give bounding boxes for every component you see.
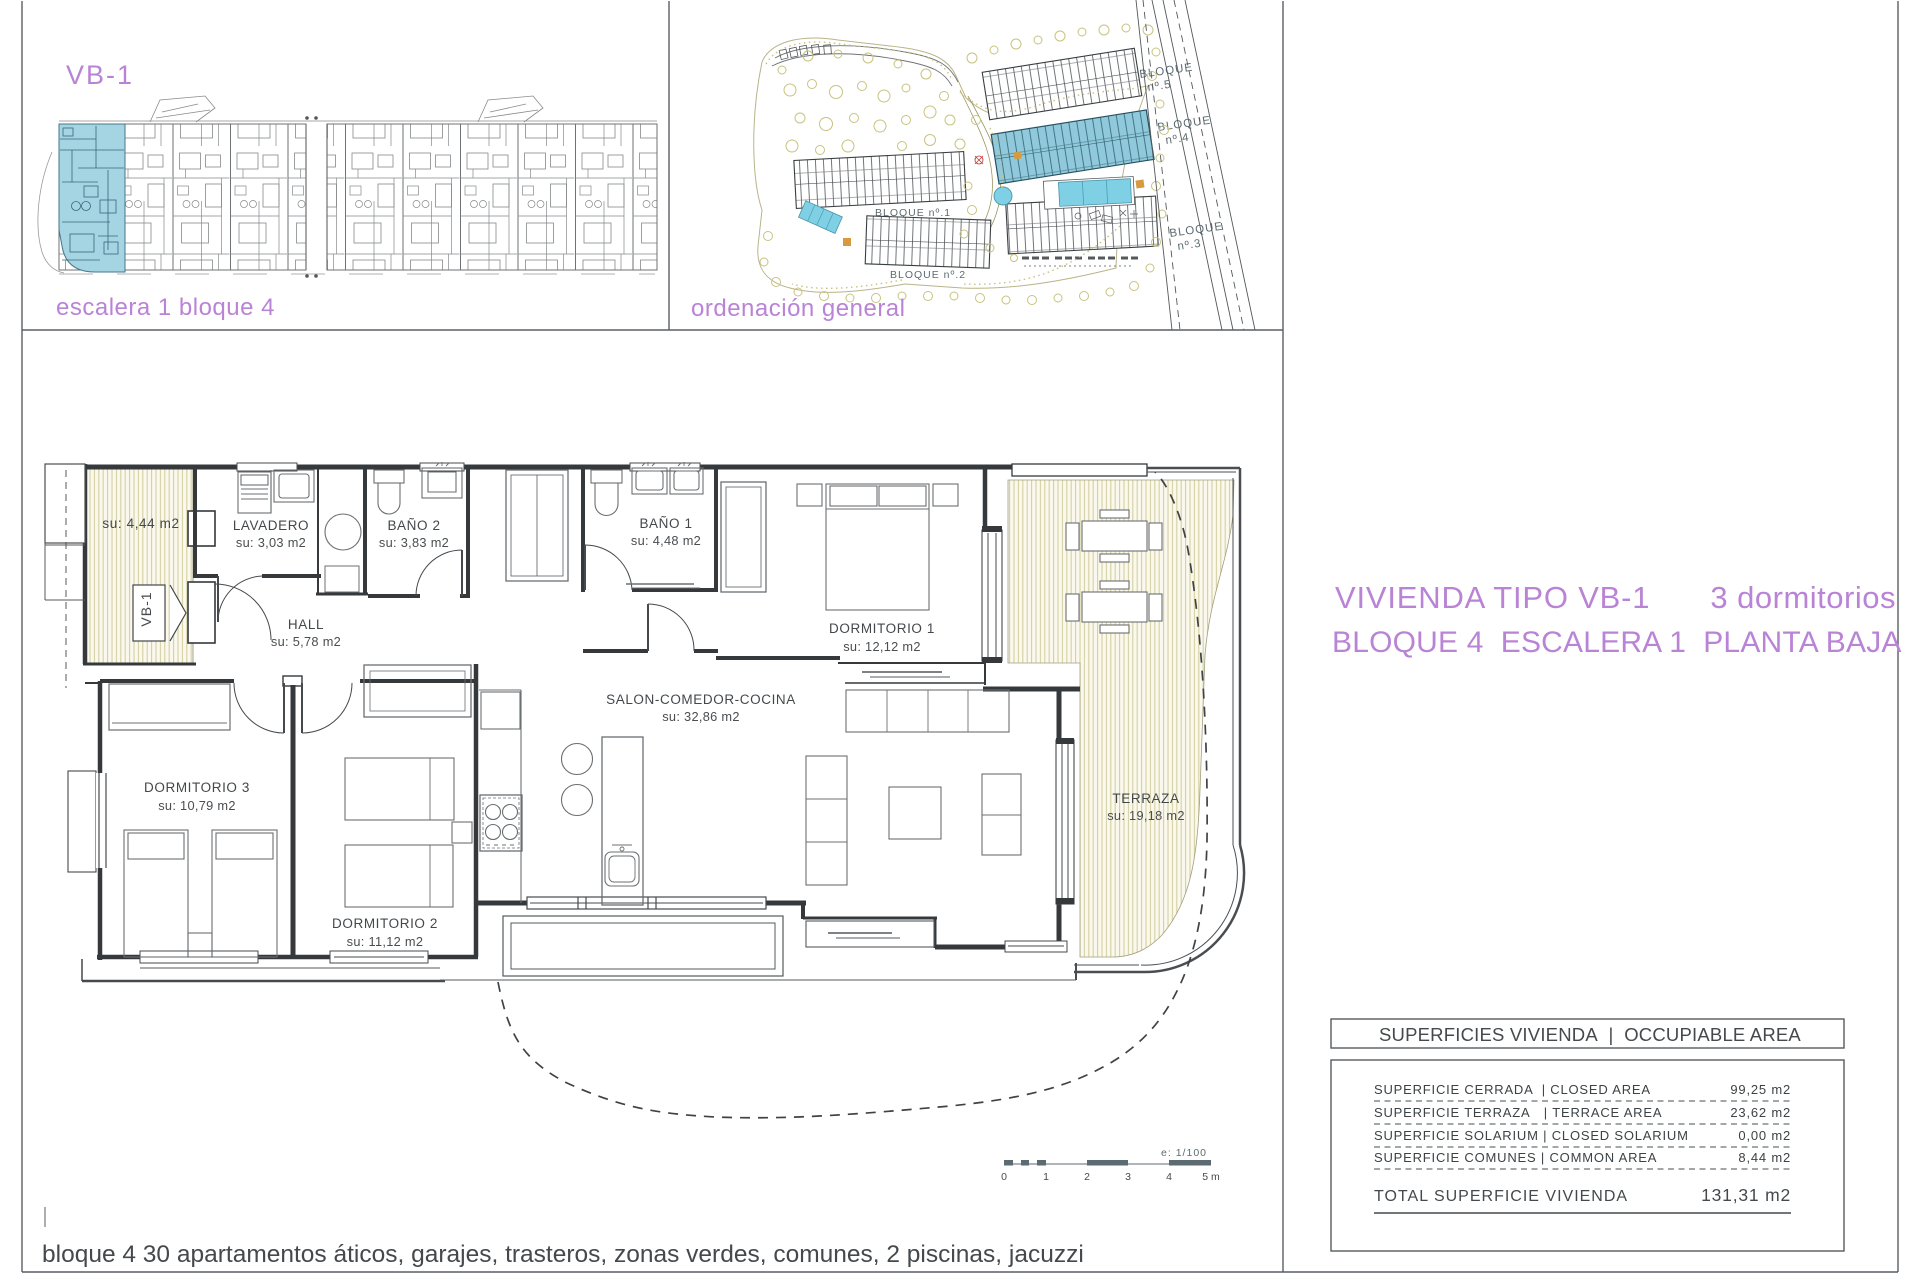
svg-text:nº.3: nº.3 [1177, 238, 1203, 253]
svg-text:DORMITORIO 3: DORMITORIO 3 [144, 780, 250, 795]
svg-text:DORMITORIO 1: DORMITORIO 1 [829, 621, 935, 636]
svg-text:1: 1 [1043, 1171, 1049, 1183]
svg-text:nº.5: nº.5 [1147, 79, 1173, 94]
svg-text:DORMITORIO 2: DORMITORIO 2 [332, 916, 438, 931]
svg-text:su: 5,78 m2: su: 5,78 m2 [271, 634, 341, 649]
svg-text:3 dormitorios: 3 dormitorios [1710, 580, 1896, 615]
svg-text:VIVIENDA TIPO VB-1: VIVIENDA TIPO VB-1 [1335, 580, 1650, 615]
svg-text:BAÑO 1: BAÑO 1 [639, 516, 692, 531]
svg-text:escalera 1 bloque 4: escalera 1 bloque 4 [56, 294, 275, 321]
svg-text:BLOQUE nº.2: BLOQUE nº.2 [890, 269, 966, 281]
svg-text:su: 4,44 m2: su: 4,44 m2 [102, 516, 179, 531]
svg-text:SUPERFICIE CERRADA | CLOSED A: SUPERFICIE CERRADA | CLOSED AREA [1374, 1082, 1651, 1097]
svg-text:BLOQUE 4 ESCALERA 1 PLANTA B: BLOQUE 4 ESCALERA 1 PLANTA BAJA [1332, 626, 1902, 659]
svg-text:BLOQUE: BLOQUE [1139, 62, 1194, 81]
svg-text:su: 11,12 m2: su: 11,12 m2 [347, 934, 424, 949]
svg-text:SALON-COMEDOR-COCINA: SALON-COMEDOR-COCINA [606, 692, 796, 707]
svg-text:SUPERFICIE TERRAZA | TERRACE: SUPERFICIE TERRAZA | TERRACE AREA [1374, 1105, 1662, 1120]
svg-text:su: 3,03 m2: su: 3,03 m2 [236, 535, 306, 550]
svg-text:SUPERFICIES VIVIENDA | OCCUP: SUPERFICIES VIVIENDA | OCCUPIABLE AREA [1379, 1024, 1801, 1045]
svg-text:SUPERFICIE COMUNES | COMMON AR: SUPERFICIE COMUNES | COMMON AREA [1374, 1150, 1657, 1165]
svg-text:su: 3,83 m2: su: 3,83 m2 [379, 535, 449, 550]
svg-text:VB-1: VB-1 [138, 591, 154, 626]
svg-text:nº.4: nº.4 [1165, 132, 1191, 147]
svg-text:LAVADERO: LAVADERO [233, 518, 309, 533]
svg-text:bloque 4 30 apartamentos ático: bloque 4 30 apartamentos áticos, garajes… [42, 1241, 1084, 1268]
svg-text:8,44 m2: 8,44 m2 [1738, 1150, 1791, 1165]
svg-text:TERRAZA: TERRAZA [1112, 791, 1179, 806]
svg-text:4: 4 [1166, 1171, 1172, 1183]
svg-text:99,25 m2: 99,25 m2 [1730, 1082, 1791, 1097]
svg-text:su: 12,12 m2: su: 12,12 m2 [843, 639, 921, 654]
svg-text:0: 0 [1001, 1171, 1007, 1183]
svg-text:su: 32,86 m2: su: 32,86 m2 [662, 709, 740, 724]
svg-text:TOTAL SUPERFICIE VIVIENDA: TOTAL SUPERFICIE VIVIENDA [1374, 1188, 1628, 1205]
svg-text:3: 3 [1125, 1171, 1131, 1183]
svg-text:2: 2 [1084, 1171, 1090, 1183]
svg-text:5 m: 5 m [1202, 1171, 1220, 1183]
svg-text:BLOQUE: BLOQUE [1157, 115, 1212, 134]
svg-text:0,00 m2: 0,00 m2 [1738, 1128, 1791, 1143]
svg-text:23,62 m2: 23,62 m2 [1730, 1105, 1791, 1120]
svg-text:BLOQUE: BLOQUE [1169, 221, 1224, 240]
svg-text:HALL: HALL [288, 617, 324, 632]
svg-text:SUPERFICIE SOLARIUM | CLOSED S: SUPERFICIE SOLARIUM | CLOSED SOLARIUM [1374, 1128, 1689, 1143]
svg-text:ordenación general: ordenación general [691, 295, 906, 322]
svg-text:BAÑO 2: BAÑO 2 [387, 518, 440, 533]
svg-text:su: 10,79 m2: su: 10,79 m2 [158, 798, 236, 813]
svg-text:VB-1: VB-1 [66, 60, 134, 90]
svg-text:su: 4,48 m2: su: 4,48 m2 [631, 533, 701, 548]
svg-text:131,31 m2: 131,31 m2 [1701, 1185, 1791, 1205]
svg-text:su: 19,18 m2: su: 19,18 m2 [1107, 808, 1185, 823]
svg-text:e: 1/100: e: 1/100 [1161, 1147, 1207, 1159]
